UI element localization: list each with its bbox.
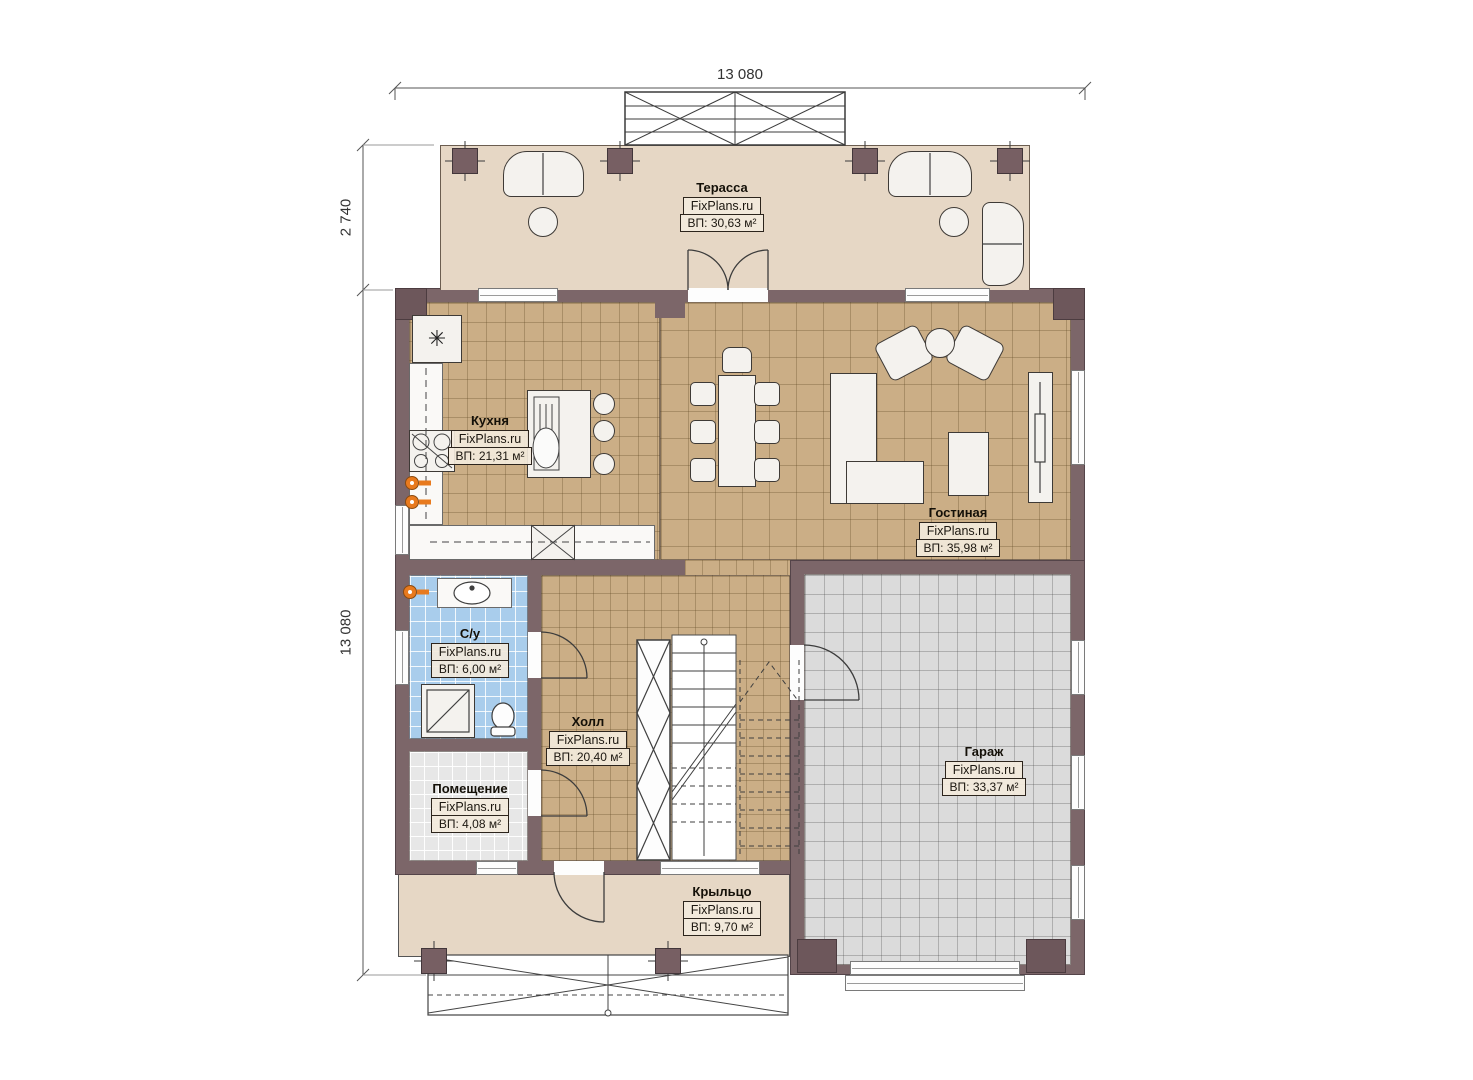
living-room-label: Гостиная FixPlans.ru ВП: 35,98 м² — [893, 505, 1023, 557]
dining-chair — [690, 420, 716, 444]
terrace-table-left — [528, 207, 558, 237]
garage-window-3 — [1071, 865, 1085, 920]
porch-steps — [428, 955, 788, 1016]
dimension-side-lower: 13 080 — [338, 593, 355, 673]
bar-stool — [593, 453, 615, 475]
dimension-side-upper: 2 740 — [338, 178, 355, 258]
wall-pier — [655, 302, 685, 318]
living-room-name: Гостиная — [929, 505, 988, 520]
kitchen-side-window — [395, 505, 409, 555]
terrace-loveseat-left — [503, 151, 584, 197]
kitchen-window — [478, 288, 558, 302]
terrace-name: Терасса — [696, 180, 748, 195]
fridge: ✳ — [412, 315, 462, 363]
hall-window — [660, 861, 760, 875]
bathroom-name: С/у — [460, 626, 480, 641]
tv-unit — [1028, 372, 1053, 503]
coffee-table — [948, 432, 989, 496]
terrace-loveseat-right — [888, 151, 972, 197]
fridge-snowflake-icon: ✳ — [428, 326, 446, 352]
garage-apron — [845, 975, 1025, 991]
utility-room-brand: FixPlans.ru — [431, 798, 510, 816]
hall-name: Холл — [572, 714, 605, 729]
utility-room-name: Помещение — [432, 781, 507, 796]
garage-label: Гараж FixPlans.ru ВП: 33,37 м² — [919, 744, 1049, 796]
terrace-label: Терасса FixPlans.ru ВП: 30,63 м² — [657, 180, 787, 232]
dining-chair — [690, 382, 716, 406]
utility-window — [476, 861, 518, 875]
bathroom-sink-counter — [437, 578, 512, 608]
garage-area: ВП: 33,37 м² — [942, 778, 1027, 796]
wall-pier — [1026, 939, 1066, 973]
garage-window-2 — [1071, 755, 1085, 810]
terrace-column — [452, 148, 478, 174]
side-table — [925, 328, 955, 358]
hall-brand: FixPlans.ru — [549, 731, 628, 749]
living-room-area: ВП: 35,98 м² — [916, 539, 1001, 557]
kitchen-sink-cabinet — [531, 525, 575, 560]
corner-sofa-seat — [846, 461, 924, 504]
hall-garage-door-opening — [790, 645, 804, 700]
bathroom-area: ВП: 6,00 м² — [431, 660, 509, 678]
stair-opening-floor — [685, 560, 790, 576]
kitchen-area: ВП: 21,31 м² — [448, 447, 533, 465]
floor-plan-canvas: ✳ Терасса FixPlans.ru ВП: 30,63 м² Кухня… — [0, 0, 1473, 1080]
dining-chair — [754, 458, 780, 482]
living-room-window — [905, 288, 990, 302]
hall-area: ВП: 20,40 м² — [546, 748, 631, 766]
dining-chair — [754, 420, 780, 444]
wall-pier — [797, 939, 837, 973]
pergola-canopy — [625, 92, 845, 145]
garage-brand: FixPlans.ru — [945, 761, 1024, 779]
utility-room-label: Помещение FixPlans.ru ВП: 4,08 м² — [405, 781, 535, 833]
dining-chair — [690, 458, 716, 482]
dining-table — [718, 375, 756, 487]
garage-vehicle-door — [850, 961, 1020, 975]
terrace-sofa-right — [982, 202, 1024, 286]
shower — [421, 684, 475, 738]
dimension-top: 13 080 — [690, 66, 790, 83]
terrace-column — [997, 148, 1023, 174]
living-room-brand: FixPlans.ru — [919, 522, 998, 540]
porch-name: Крыльцо — [692, 884, 751, 899]
porch-area: ВП: 9,70 м² — [683, 918, 761, 936]
dining-chair — [754, 382, 780, 406]
hall-label: Холл FixPlans.ru ВП: 20,40 м² — [523, 714, 653, 766]
utility-room-area: ВП: 4,08 м² — [431, 815, 509, 833]
kitchen-name: Кухня — [471, 413, 509, 428]
bathroom-label: С/у FixPlans.ru ВП: 6,00 м² — [405, 626, 535, 678]
terrace-area: ВП: 30,63 м² — [680, 214, 765, 232]
garage-window-1 — [1071, 640, 1085, 695]
garage-name: Гараж — [965, 744, 1004, 759]
terrace-column — [607, 148, 633, 174]
terrace-column — [852, 148, 878, 174]
bar-stool — [593, 420, 615, 442]
porch-column — [421, 948, 447, 974]
terrace-door-opening — [688, 288, 768, 302]
porch-column — [655, 948, 681, 974]
kitchen-brand: FixPlans.ru — [451, 430, 530, 448]
bathroom-brand: FixPlans.ru — [431, 643, 510, 661]
porch-label: Крыльцо FixPlans.ru ВП: 9,70 м² — [657, 884, 787, 936]
porch-door-opening — [554, 861, 604, 875]
porch-brand: FixPlans.ru — [683, 901, 762, 919]
wall-pier — [1053, 288, 1085, 320]
terrace-brand: FixPlans.ru — [683, 197, 762, 215]
bar-stool — [593, 393, 615, 415]
terrace-table-right — [939, 207, 969, 237]
living-room-side-window — [1071, 370, 1085, 465]
kitchen-label: Кухня FixPlans.ru ВП: 21,31 м² — [425, 413, 555, 465]
dining-chair — [722, 347, 752, 373]
